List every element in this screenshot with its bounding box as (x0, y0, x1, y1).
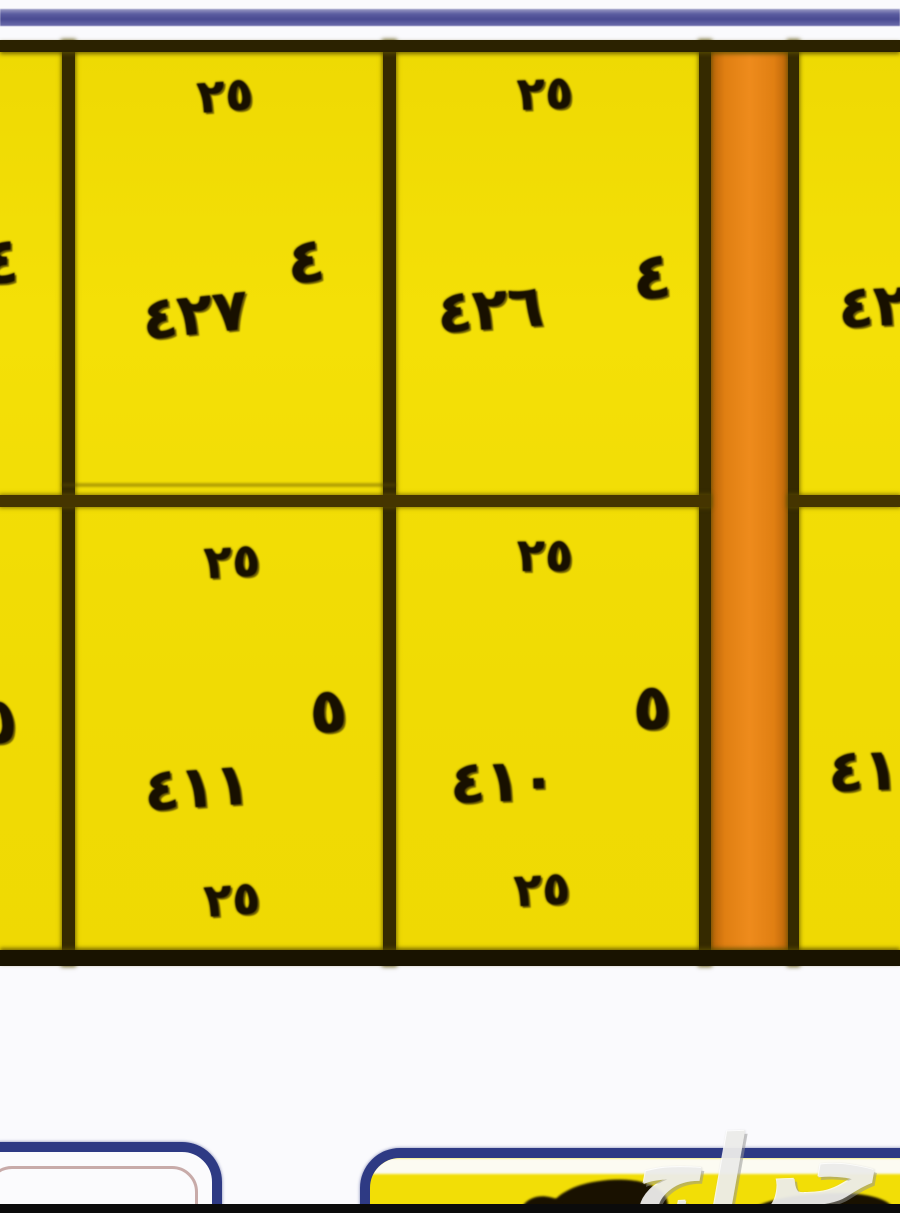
plot-number-partial-right: ٤١ (827, 738, 900, 801)
side-mark: ٥ (619, 675, 685, 741)
side-mark: ٤ (274, 228, 338, 294)
dimension-label: ٢٥ (164, 68, 287, 122)
map-top-border (0, 40, 900, 52)
dimension-label: ٢٥ (171, 535, 293, 587)
dimension-label: ٢٥ (171, 872, 294, 926)
side-mark-partial-left: ٤ (0, 230, 30, 294)
dimension-label: ٢٥ (485, 532, 605, 578)
side-mark-partial-left: ٥ (0, 690, 28, 754)
screenshot-root: ٢٥ ٢٥ ٤٢٧ ٤٢٦ ٤ ٤ ٤ ٤٢ ٢٥ ٢٥ ٤١١ ٤١٠ ٥ ٥… (0, 0, 900, 1213)
plot-number: ٤١١ (110, 752, 284, 822)
row-divider-line (0, 495, 711, 507)
side-mark: ٥ (294, 677, 362, 745)
plot-number: ٤٢٦ (403, 274, 577, 344)
plot-number: ٤٢٧ (107, 276, 282, 351)
bottom-left-block (0, 1142, 222, 1213)
bottom-black-strip (0, 1204, 900, 1213)
row-divider-line (788, 495, 900, 507)
dimension-label: ٢٥ (484, 68, 606, 118)
map-bottom-border (0, 950, 900, 966)
top-blue-strip (0, 9, 900, 26)
haraj-watermark: حراج (626, 1106, 900, 1213)
road-strip (711, 40, 788, 966)
plot-map: ٢٥ ٢٥ ٤٢٧ ٤٢٦ ٤ ٤ ٤ ٤٢ ٢٥ ٢٥ ٤١١ ٤١٠ ٥ ٥… (0, 40, 900, 966)
side-mark: ٤ (620, 243, 683, 310)
row-divider-faint-line (62, 483, 396, 487)
dimension-label: ٢٥ (481, 863, 603, 915)
plot-number: ٤١٠ (417, 749, 589, 813)
plot-number-partial-right: ٤٢ (837, 271, 900, 336)
